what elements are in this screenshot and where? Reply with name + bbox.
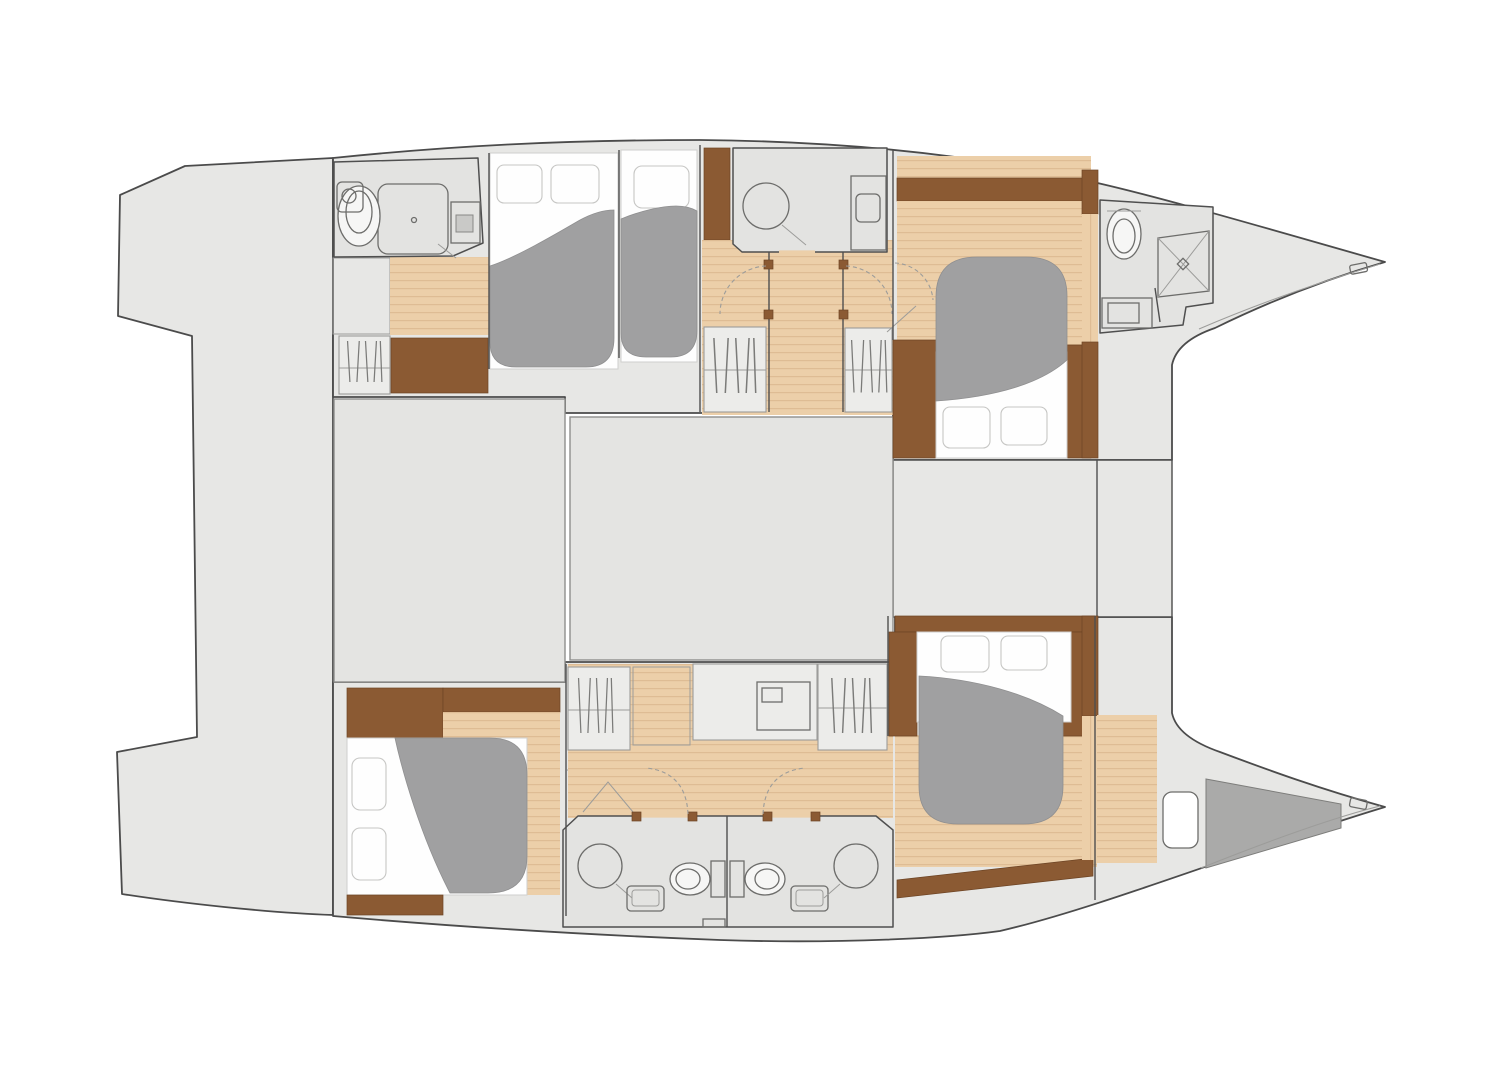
toilet-icon xyxy=(338,186,380,246)
starboard-hanging-locker-left xyxy=(568,667,630,750)
floor-plan-canvas xyxy=(0,0,1512,1080)
pillow xyxy=(634,166,689,208)
pillow xyxy=(497,165,542,203)
door-post xyxy=(764,260,773,269)
duvet xyxy=(621,206,697,357)
port-aft-cabinet xyxy=(391,338,488,393)
port-forward-cabin xyxy=(887,156,1093,458)
port-aft-corridor-floor xyxy=(390,257,489,335)
deck-hatch-icon xyxy=(1163,792,1198,848)
cabin-floor xyxy=(527,738,560,895)
headboard-cabinet xyxy=(347,688,443,738)
starboard-vanity-unit xyxy=(693,664,817,740)
starboard-hanging-locker-right xyxy=(818,664,887,750)
outboard-shelf xyxy=(897,178,1093,201)
door-post xyxy=(632,812,641,821)
door-post xyxy=(688,812,697,821)
cabin-shelf-floor xyxy=(897,156,1091,178)
port-aft-head xyxy=(334,158,483,258)
saloon-block-aft xyxy=(334,399,565,682)
pillow xyxy=(551,165,599,203)
port-aft-cabin-1-bed xyxy=(490,153,618,369)
door-post xyxy=(764,310,773,319)
pillow xyxy=(941,636,989,672)
port-aft-cabin-2-bed xyxy=(621,150,697,362)
toilet-icon xyxy=(1107,209,1141,259)
pillow xyxy=(352,828,386,880)
bed-foot-rail xyxy=(347,895,443,915)
pillow xyxy=(352,758,386,810)
inboard-shelf xyxy=(443,688,560,712)
door-post xyxy=(811,812,820,821)
catamaran-floor-plan xyxy=(0,0,1512,1080)
transom-platform xyxy=(117,158,333,915)
pillow xyxy=(1001,407,1047,445)
sink-icon xyxy=(456,215,473,232)
pillow xyxy=(943,407,990,448)
port-bow-column xyxy=(1082,170,1098,458)
bow-floor xyxy=(1097,715,1157,863)
foredeck-block xyxy=(893,460,1172,617)
port-hanging-locker-left xyxy=(704,327,766,412)
door-post xyxy=(839,310,848,319)
cabin-floor xyxy=(443,712,560,740)
port-mid-wardrobe xyxy=(704,148,730,240)
door-post xyxy=(763,812,772,821)
pillow xyxy=(1001,636,1047,670)
port-aft-hanging-locker xyxy=(339,336,390,394)
door-post xyxy=(839,260,848,269)
port-mid-head xyxy=(733,148,887,252)
port-hanging-locker-right xyxy=(845,328,892,412)
saloon-block-forward xyxy=(570,417,893,660)
wardrobe xyxy=(893,340,937,458)
headboard-shelf xyxy=(895,616,1095,632)
bed-rail xyxy=(889,632,917,736)
